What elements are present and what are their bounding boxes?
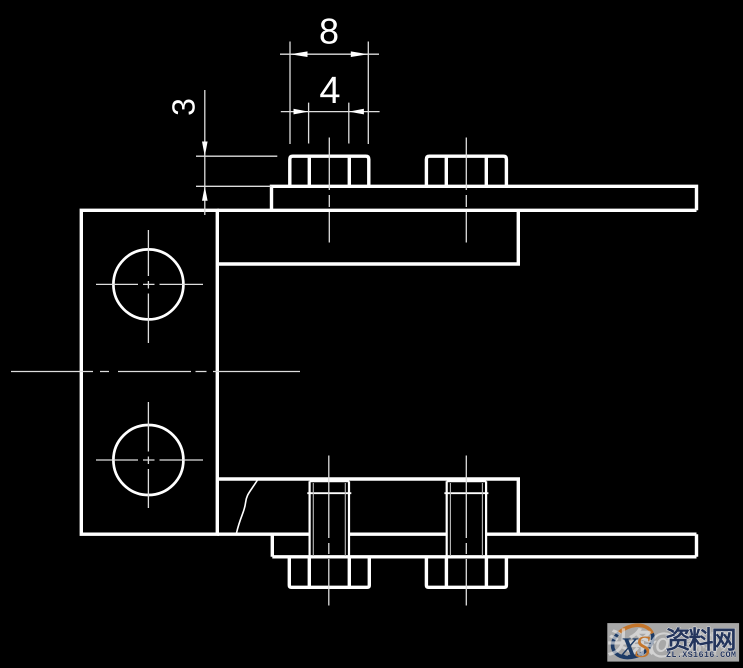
svg-text:ZL.XS1616.COM: ZL.XS1616.COM	[666, 650, 736, 660]
svg-text:4: 4	[319, 70, 340, 112]
svg-text:8: 8	[319, 11, 339, 52]
svg-text:3: 3	[165, 98, 201, 116]
svg-text:S: S	[635, 629, 651, 664]
